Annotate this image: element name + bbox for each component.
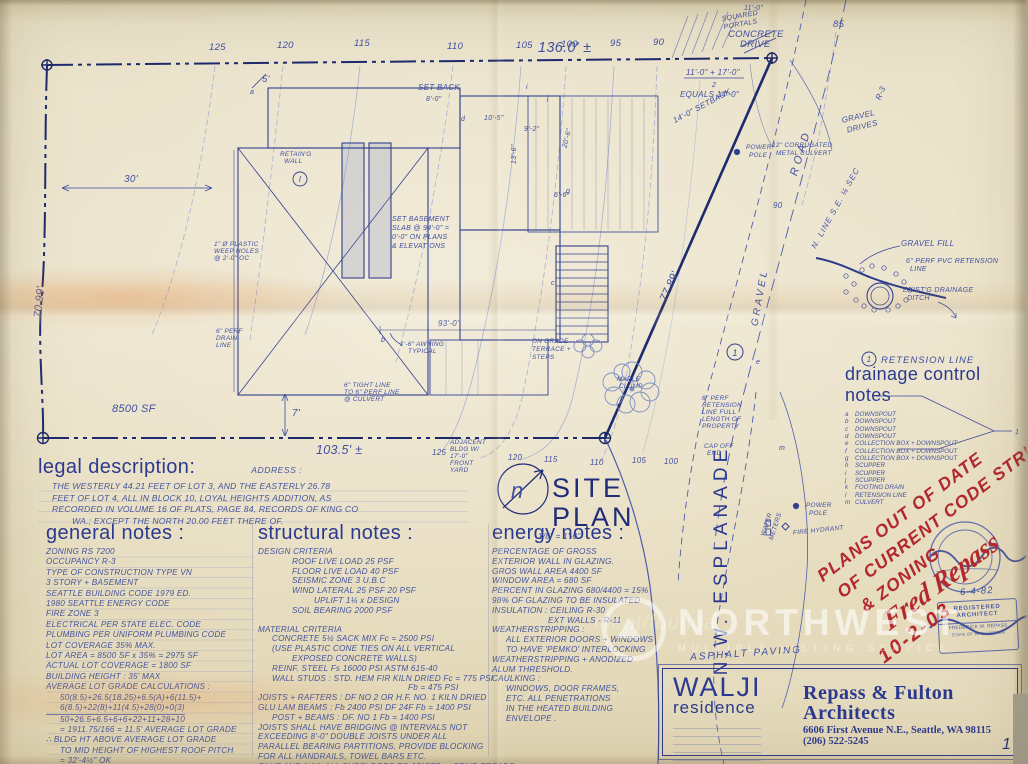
label-power-pole-top-2: POLE <box>749 152 768 159</box>
dim-30: 30' <box>124 174 139 185</box>
label-culvert-1: 12" CORRUGATED <box>772 142 832 149</box>
label-tightline-1: 6" TIGHT LINE <box>344 382 391 389</box>
column-divider <box>488 524 489 756</box>
dim-east: 77.89' <box>658 269 682 303</box>
plan-letter-g: g <box>566 188 570 195</box>
firm-phone: (206) 522-5245 <box>803 736 1017 747</box>
contour-label: 110 <box>447 41 463 52</box>
dim-7: 7' <box>292 408 301 419</box>
note-line: ∴ BLDG HT ABOVE AVERAGE LOT GRADE <box>46 735 254 745</box>
label-weep-2: WEEP HOLES <box>214 248 259 255</box>
firm-name-2: Architects <box>803 703 1017 723</box>
label-awning-2: TYPICAL <box>408 348 437 355</box>
label-r3: R-3 <box>874 85 888 101</box>
watermark-logo-icon <box>602 597 666 661</box>
address-label: ADDRESS : <box>251 465 302 475</box>
project-type: residence <box>673 700 803 716</box>
note-line: EXTERIOR WALL IN GLAZING. <box>492 557 654 567</box>
legal-line: FEET OF LOT 4, ALL IN BLOCK 10, LOYAL HE… <box>38 493 468 505</box>
note-line: GROS WALL AREA 4400 SF <box>492 567 654 577</box>
title-block-firm-cell: Repass & Fulton Architects 6606 First Av… <box>803 669 1017 755</box>
note-line: Fb = 475 PSI <box>258 683 490 693</box>
plan-letter-a: a <box>250 89 254 96</box>
note-line: PLUMBING PER UNIFORM PLUMBING CODE <box>46 630 254 640</box>
title-block-project-cell: WALJI residence <box>663 669 803 755</box>
note-line: TO MID HEIGHT OF HIGHEST ROOF PITCH <box>46 746 254 756</box>
contour-label: 115 <box>544 455 558 464</box>
label-maple-1: MAPLE <box>617 376 641 383</box>
label-terrace-2: TERRACE + <box>532 346 571 353</box>
contour-label: 115 <box>354 38 370 49</box>
drainage-item: aDOWNSPOUT <box>845 411 1027 418</box>
note-line: PARALLEL BEARING PARTITIONS, PROVIDE BLO… <box>258 742 490 752</box>
contour-label: 105 <box>632 456 646 465</box>
contour-label: 110 <box>590 458 604 467</box>
contour-label: 100 <box>664 457 678 466</box>
note-line: 6(8.5)+22(8)+11(4.5)+28(0)+0(3) <box>46 703 254 713</box>
label-maple-2: CLUMP <box>619 383 643 390</box>
firm-address: 6606 First Avenue N.E., Seattle, WA 9811… <box>803 725 1017 736</box>
dim-5: 5' <box>262 74 271 85</box>
structural-notes-heading: structural notes : <box>258 522 490 544</box>
contour-label: 105 <box>516 40 533 51</box>
note-line: JOISTS SHALL HAVE BRIDGING @ INTERVALS N… <box>258 723 490 733</box>
legend-marker-1: 1 <box>867 355 872 364</box>
label-culvert-2: METAL CULVERT <box>776 150 833 157</box>
plan-letter-i: i <box>526 84 528 91</box>
general-notes-block: general notes : ZONING RS 7200 OCCUPANCY… <box>46 522 254 764</box>
note-line: EXPOSED CONCRETE WALLS) <box>258 654 490 664</box>
general-notes-heading: general notes : <box>46 522 254 544</box>
contour-label: 120 <box>508 453 522 462</box>
watermark-brand: NORTHWEST <box>678 604 961 641</box>
note-line: ACTUAL LOT COVERAGE = 1800 SF <box>46 661 254 671</box>
note-line: MATERIAL CRITERIA <box>258 625 490 635</box>
label-section-line: N. LINE S.E. ¼ SEC <box>810 166 862 250</box>
label-weep-1: 1" Ø PLASTIC <box>214 241 259 248</box>
label-perf-drain-2: DRAIN <box>216 335 237 342</box>
dim-west: 70.99' <box>32 285 47 318</box>
energy-notes-heading: energy notes : <box>492 522 654 544</box>
dim-b3: 13'-6" <box>511 144 518 164</box>
blueprint-sheet: 125 120 115 110 105 100 95 90 85 90 125 … <box>0 0 1028 764</box>
note-line: WIND LATERAL 25 PSF 20 PSF <box>258 586 490 596</box>
note-line: (USE PLASTIC CONE TIES ON ALL VERTICAL <box>258 644 490 654</box>
plan-letter-b: b <box>381 337 385 344</box>
legal-line: THE WESTERLY 44.21 FEET OF LOT 3, AND TH… <box>38 481 468 493</box>
wall-ref-marker: I <box>299 175 302 184</box>
dim-south: 103.5' ± <box>316 443 362 457</box>
label-awning-1: 1'-6" AWNING <box>400 341 444 348</box>
note-line: ROOF LIVE LOAD 25 PSF <box>258 557 490 567</box>
note-line: 1980 SEATTLE ENERGY CODE <box>46 599 254 609</box>
note-line: REINF. STEEL Fs 16000 PSI ASTM 615-40 <box>258 664 490 674</box>
legal-heading: legal description: <box>38 456 195 478</box>
note-line: ENVELOPE . <box>492 714 654 724</box>
note-line: BUILDING HEIGHT : 35' MAX <box>46 672 254 682</box>
lot-area: 8500 SF <box>112 403 157 415</box>
note-line: SOIL BEARING 2000 PSF <box>258 606 490 616</box>
contour-label: 85 <box>833 19 845 30</box>
dim-b2: 9'-2" <box>524 126 540 133</box>
label-cap-off-1: CAP OFF <box>704 443 734 450</box>
label-fire-hydrant: FIRE HYDRANT <box>793 524 845 536</box>
contour-label: 95 <box>610 38 622 49</box>
north-letter: n <box>511 478 524 503</box>
note-line: 50+26.5+6.5+6+6+22+11+28+10 <box>46 714 185 725</box>
note-line: SEISMIC ZONE 3 U.B.C <box>258 576 490 586</box>
label-retension-full-3: LINE FULL <box>702 409 736 416</box>
plan-letter-m: m <box>779 445 785 452</box>
label-gravel: GRAVEL <box>750 268 771 327</box>
note-line: UPLIFT 1¼ x DESIGN <box>258 596 490 606</box>
label-concrete-drive-2: DRIVE <box>740 39 771 50</box>
project-name: WALJI <box>673 675 803 700</box>
label-power-pole-bot-1: POWER <box>806 502 832 509</box>
note-line: ALUM THRESHOLD. <box>492 665 654 675</box>
dim-b1: 10'-5" <box>484 115 504 122</box>
note-line: WALL STUDS : STD. HEM FIR KILN DRIED Fc … <box>258 674 490 684</box>
note-line: JOISTS + RAFTERS : DF NO 2 OR H.F. NO. 1… <box>258 693 490 703</box>
note-line: TYPE OF CONSTRUCTION TYPE VN <box>46 568 254 578</box>
label-cap-off-2: END <box>707 450 721 457</box>
title-block: WALJI residence Repass & Fulton Architec… <box>662 668 1018 756</box>
building-footprint <box>234 88 658 395</box>
note-line: CAULKING : <box>492 674 654 684</box>
watermark: NORTHWEST MULTIPLE LISTING SERVICE <box>602 597 961 661</box>
label-retension-full-4: LENGTH OF <box>702 416 742 423</box>
dim-frontage: 136.0' ± <box>538 40 591 56</box>
note-line: WINDOW AREA = 680 SF <box>492 576 654 586</box>
note-line: 50(8.5)+26.5(18.25)+6.5(A)+6(11.5)+ <box>46 693 254 703</box>
dim-eq-den: 2 <box>711 82 716 89</box>
note-line: GLU LAM BEAMS : Fb 2400 PSI DF 24F Fb = … <box>258 703 490 713</box>
label-power-pole-top-1: POWER <box>746 144 772 151</box>
label-retaining-1: RETAIN'G <box>280 151 312 158</box>
note-line: = 32'-4½" OK <box>46 756 254 764</box>
legal-line: RECORDED IN VOLUME 16 OF PLATS, PAGE 84,… <box>38 504 468 516</box>
note-line: WINDOWS, DOOR FRAMES, <box>492 684 654 694</box>
contour-label: 125 <box>209 42 226 53</box>
note-line: LOT AREA = 8500 SF x 35% = 2975 SF <box>46 651 254 661</box>
label-ditch-2: DITCH <box>907 295 931 302</box>
note-line: FIRE ZONE 3 <box>46 609 254 619</box>
dimension-lines <box>62 64 956 436</box>
plan-letter-e: e <box>756 359 760 366</box>
label-weep-3: @ 2'-0" OC <box>214 255 249 262</box>
label-basement-2: SLAB @ 94'-0" = <box>392 225 449 232</box>
note-line: PERCENT IN GLAZING 680/4400 = 15% <box>492 586 654 596</box>
note-line: POST + BEAMS : DF. NO 1 Fb = 1400 PSI <box>258 713 490 723</box>
note-line: FLOOR LIVE LOAD 40 PSF <box>258 567 490 577</box>
note-line: ZONING RS 7200 <box>46 547 254 557</box>
note-line: PERCENTAGE OF GROSS <box>492 547 654 557</box>
label-pvc-1: 6" PERF PVC RETENSION <box>906 258 999 265</box>
note-line: OCCUPANCY R-3 <box>46 557 254 567</box>
label-perf-drain-3: LINE <box>216 342 232 349</box>
label-terrace-3: STEPS <box>532 354 555 361</box>
label-basement-3: 0'-0" ON PLANS <box>392 234 448 241</box>
watermark-tagline: MULTIPLE LISTING SERVICE <box>678 644 961 654</box>
note-line: FOR ALL HANDRAILS, TOWEL BARS ETC. <box>258 752 490 762</box>
contour-label: 90 <box>653 37 665 48</box>
dim-93: 93'-0" <box>438 319 461 328</box>
label-ditch-1: EXIST'G DRAINAGE <box>903 287 973 294</box>
label-power-pole-bot-2: POLE <box>809 510 828 517</box>
note-line: AVERAGE LOT GRADE CALCULATIONS : <box>46 682 254 692</box>
note-line: DESIGN CRITERIA <box>258 547 490 557</box>
plan-marker-1: 1 <box>732 348 738 359</box>
structural-notes-block: structural notes : DESIGN CRITERIA ROOF … <box>258 522 490 764</box>
note-line: ELECTRICAL PER STATE ELEC. CODE <box>46 620 254 630</box>
page-number: 1 <box>1002 736 1011 754</box>
note-line: LOT COVERAGE 35% MAX. <box>46 641 254 651</box>
label-pvc-2: LINE <box>910 266 927 273</box>
label-setback: SET BACK <box>418 83 460 92</box>
plan-letter-j: j <box>546 95 549 102</box>
label-terrace-1: ON GRADE <box>532 338 569 345</box>
drainage-notes-heading: drainage control notes <box>845 364 1027 406</box>
label-tightline-3: @ CULVERT <box>344 396 385 403</box>
dim-eq-top: 11'-0" + 17'-0" <box>686 68 741 77</box>
column-divider <box>252 524 253 756</box>
note-line: 3 STORY + BASEMENT <box>46 578 254 588</box>
contour-label: 120 <box>277 40 294 51</box>
title-block-ruled-lines <box>673 721 803 761</box>
plan-title-1: SITE <box>552 473 624 503</box>
note-line: EXCEEDING 8'-0" DOUBLE JOISTS UNDER ALL <box>258 732 490 742</box>
label-adjacent-1: ADJACENT <box>449 439 487 446</box>
note-line: SEATTLE BUILDING CODE 1979 ED. <box>46 589 254 599</box>
label-retension-full-2: RETENSION <box>702 402 742 409</box>
dim-sb8: 8'-0" <box>426 96 442 103</box>
note-line: = 1911.75/166 = 11.5' AVERAGE LOT GRADE <box>46 725 254 735</box>
label-retension-full-1: 6" PERF <box>702 395 730 402</box>
label-basement-1: SET BASEMENT <box>392 216 450 223</box>
dim-b4: 20'-6" <box>561 128 573 150</box>
note-line: ETC. ALL PENETRATIONS <box>492 694 654 704</box>
note-line: IN THE HEATED BUILDING <box>492 704 654 714</box>
handwritten-stamp-date: 6-4-82 <box>960 585 994 598</box>
note-line: CONCRETE 5½ SACK MIX Fc = 2500 PSI <box>258 634 490 644</box>
label-retension-full-5: PROPERTY <box>702 423 740 430</box>
label-retaining-2: WALL <box>284 158 303 165</box>
label-adjacent-2: BLDG W/ <box>450 446 480 453</box>
drainage-item: bDOWNSPOUT <box>845 418 1027 425</box>
firm-name-1: Repass & Fulton <box>803 683 1017 703</box>
label-perf-drain-1: 6" PERF <box>216 328 244 335</box>
label-gravel-fill: GRAVEL FILL <box>901 239 954 248</box>
legal-description-block: legal description: ADDRESS : THE WESTERL… <box>38 456 468 527</box>
contour-label: 90 <box>773 201 783 210</box>
plan-letter-d: d <box>461 116 466 123</box>
label-tightline-2: TO 6" PERF LINE <box>344 389 400 396</box>
plan-letter-c: c <box>551 280 555 287</box>
label-basement-4: & ELEVATIONS <box>392 243 445 250</box>
